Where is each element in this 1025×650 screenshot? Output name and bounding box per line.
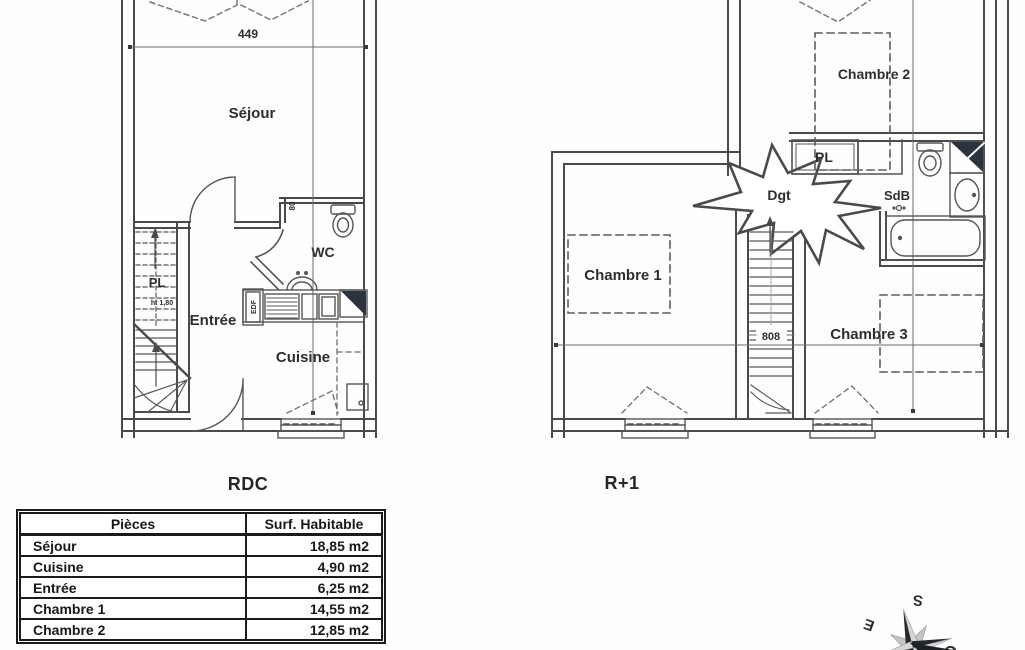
r1-window-ch3 — [810, 419, 875, 438]
room-area-cell: 6,25 m2 — [246, 577, 382, 598]
rdc-walls — [122, 0, 376, 437]
room-area-cell: 12,85 m2 — [246, 619, 382, 640]
room-name-cell: Chambre 1 — [20, 598, 246, 619]
table-row: Cuisine 4,90 m2 — [20, 556, 382, 577]
toilet-icon-r1 — [917, 143, 943, 176]
surface-table: Pièces Surf. Habitable Séjour 18,85 m2 C… — [19, 512, 383, 641]
edf-label: EDF — [251, 299, 258, 314]
room-label-entree: Entrée — [190, 312, 237, 329]
sdb-faucet-icon — [893, 206, 905, 211]
room-name-cell: Entrée — [20, 577, 246, 598]
room-area-cell: 4,90 m2 — [246, 556, 382, 577]
sejour-door-arc — [190, 177, 235, 222]
room-area-cell: 18,85 m2 — [246, 535, 382, 557]
bathtub-icon — [886, 216, 985, 260]
r1-dimension-dots — [554, 343, 984, 413]
room-label-pl: PL — [149, 275, 166, 290]
table-row: Chambre 2 12,85 m2 — [20, 619, 382, 640]
door-dim-80: 80 — [288, 201, 297, 210]
table-row: Entrée 6,25 m2 — [20, 577, 382, 598]
roof-window-dashes — [150, 0, 308, 21]
compass-rose: S E O — [845, 570, 1015, 650]
compass-south-label: S — [912, 591, 923, 609]
wc-door — [251, 230, 283, 289]
compass-east-label: E — [862, 615, 877, 634]
surface-table-wrap: Pièces Surf. Habitable Séjour 18,85 m2 C… — [16, 509, 386, 644]
room-area-cell: 14,55 m2 — [246, 598, 382, 619]
floorplan-page: 449 — [0, 0, 1025, 650]
rdc-dimension-dots — [128, 45, 368, 415]
window-swing-dashed-ch1 — [622, 387, 687, 413]
room-label-chambre3: Chambre 3 — [830, 326, 908, 343]
table-header-surface: Surf. Habitable — [246, 513, 382, 535]
toilet-icon — [331, 205, 355, 237]
table-row: Chambre 1 14,55 m2 — [20, 598, 382, 619]
room-label-sejour: Séjour — [229, 105, 276, 122]
room-label-sdb: SdB — [884, 188, 910, 203]
room-name-cell: Séjour — [20, 535, 246, 557]
sink-icon-r1 — [950, 173, 984, 217]
stair-dim-808: 808 — [762, 331, 780, 343]
rdc-window — [278, 419, 344, 438]
floor-label-rdc: RDC — [218, 474, 278, 495]
rdc-staircase — [134, 228, 190, 412]
room-label-chambre2: Chambre 2 — [838, 66, 911, 82]
r1-plan: 808 — [552, 0, 1008, 438]
r1-window-ch1 — [622, 419, 688, 438]
duct-triangle — [340, 290, 367, 317]
room-label-dgt: Dgt — [767, 187, 791, 203]
r1-staircase — [748, 216, 794, 413]
table-header-pieces: Pièces — [20, 513, 246, 535]
compass-west-label: O — [944, 642, 957, 650]
rdc-width-dim: 449 — [238, 27, 258, 41]
roof-window-dashes-r1 — [800, 0, 870, 22]
sink-icon — [302, 294, 317, 319]
landing-star — [693, 145, 881, 263]
window-swing-dashed-ch3 — [815, 386, 878, 413]
room-name-cell: Chambre 2 — [20, 619, 246, 640]
rdc-plan: 449 — [122, 0, 376, 438]
room-label-wc: WC — [311, 244, 334, 260]
table-row: Séjour 18,85 m2 — [20, 535, 382, 557]
floor-label-r1: R+1 — [592, 473, 652, 494]
room-label-chambre1: Chambre 1 — [584, 267, 662, 284]
room-label-pl-r1: PL — [815, 149, 833, 165]
stair-note: ht 1,80 — [151, 300, 173, 307]
room-label-cuisine: Cuisine — [276, 349, 330, 366]
room-name-cell: Cuisine — [20, 556, 246, 577]
duct-triangle-r1 — [950, 141, 984, 173]
entrance-door-arc — [191, 379, 243, 431]
